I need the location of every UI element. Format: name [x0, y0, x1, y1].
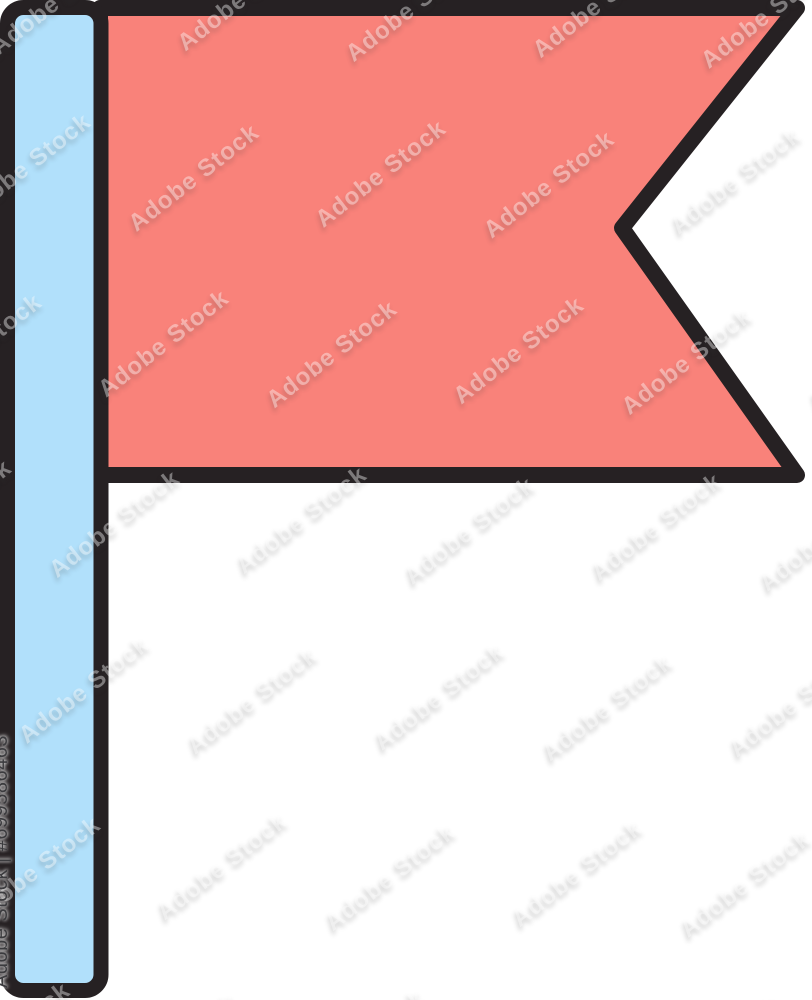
flag-icon — [0, 0, 812, 1000]
flag-pole — [8, 8, 102, 991]
flag-banner — [100, 8, 797, 475]
stock-image-preview: Adobe StockAdobe StockAdobe StockAdobe S… — [0, 0, 812, 1000]
